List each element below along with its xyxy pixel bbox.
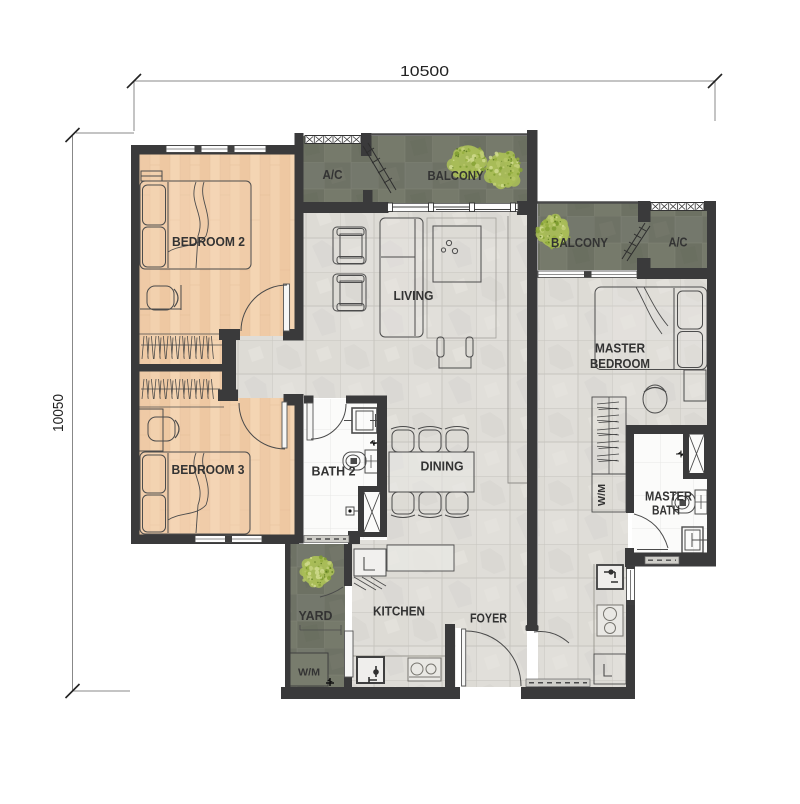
svg-text:MASTER: MASTER [595, 341, 646, 356]
svg-text:BATH 2: BATH 2 [312, 464, 356, 479]
svg-text:A/C: A/C [323, 168, 343, 182]
svg-text:BEDROOM: BEDROOM [590, 356, 650, 371]
svg-text:KITCHEN: KITCHEN [373, 604, 425, 619]
svg-text:BATH: BATH [652, 504, 680, 518]
svg-text:W/M: W/M [298, 668, 320, 679]
svg-text:MASTER: MASTER [645, 490, 692, 504]
svg-text:DINING: DINING [421, 459, 464, 474]
svg-text:BEDROOM 2: BEDROOM 2 [172, 234, 245, 249]
svg-text:FOYER: FOYER [470, 611, 507, 626]
svg-text:BALCONY: BALCONY [551, 235, 608, 250]
svg-text:10050: 10050 [50, 394, 67, 432]
svg-text:LIVING: LIVING [394, 288, 434, 303]
svg-text:BEDROOM 3: BEDROOM 3 [172, 462, 245, 477]
svg-text:YARD: YARD [299, 608, 333, 623]
svg-text:A/C: A/C [669, 236, 688, 250]
svg-text:W/M: W/M [597, 484, 608, 506]
svg-text:10500: 10500 [400, 63, 449, 80]
svg-text:BALCONY: BALCONY [428, 168, 484, 183]
